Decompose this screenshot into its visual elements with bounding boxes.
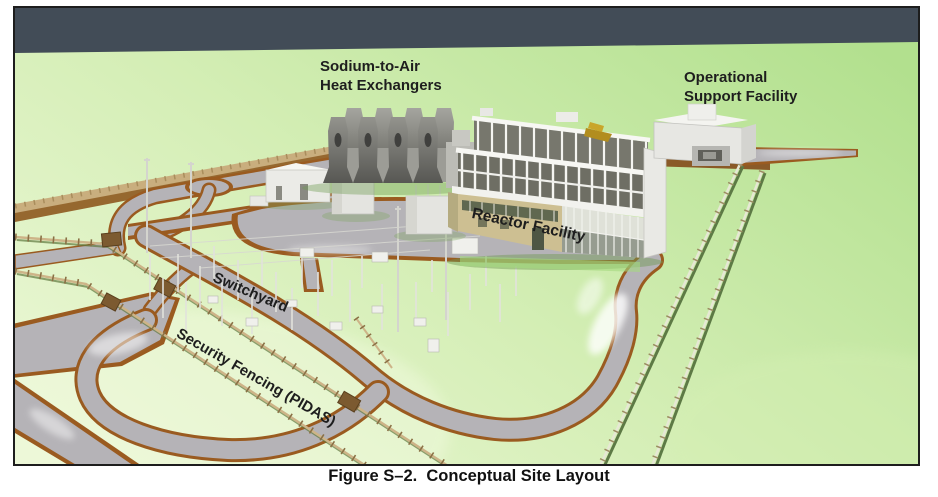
figure-caption: Figure S–2. Conceptual Site Layout bbox=[0, 467, 938, 486]
label-support-facility: Operational Support Facility bbox=[684, 69, 797, 107]
figure-s2: Sodium-to-Air Heat Exchangers Operationa… bbox=[0, 0, 938, 497]
label-heat-exchangers: Sodium-to-Air Heat Exchangers bbox=[320, 58, 442, 96]
entrance-canopy bbox=[692, 146, 730, 166]
site-rendering-frame: Sodium-to-Air Heat Exchangers Operationa… bbox=[13, 6, 920, 466]
